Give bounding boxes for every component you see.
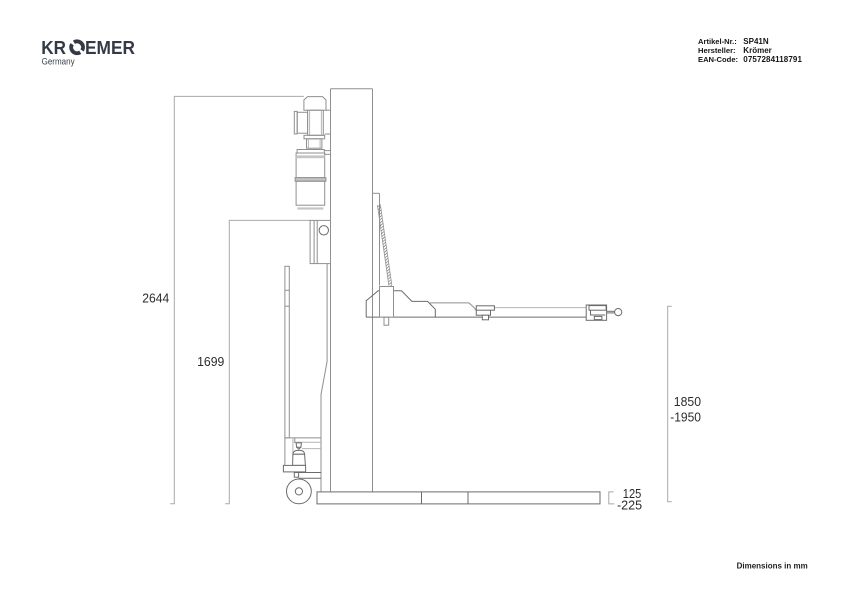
svg-text:EMER: EMER (85, 37, 135, 58)
svg-text:0757284118791: 0757284118791 (743, 55, 802, 64)
svg-text:Dimensions in mm: Dimensions in mm (737, 561, 808, 570)
svg-text:Artikel-Nr.:: Artikel-Nr.: (698, 37, 737, 46)
svg-text:1850: 1850 (674, 394, 701, 409)
svg-text:Krömer: Krömer (743, 46, 771, 55)
svg-text:2644: 2644 (142, 290, 169, 305)
svg-text:Hersteller:: Hersteller: (698, 46, 736, 55)
svg-text:KR: KR (41, 37, 66, 58)
svg-text:-1950: -1950 (670, 410, 701, 425)
svg-text:Germany: Germany (42, 57, 76, 67)
svg-text:1699: 1699 (197, 354, 224, 369)
svg-text:EAN-Code:: EAN-Code: (698, 55, 738, 64)
svg-text:-225: -225 (617, 497, 642, 512)
svg-text:SP41N: SP41N (743, 37, 769, 46)
